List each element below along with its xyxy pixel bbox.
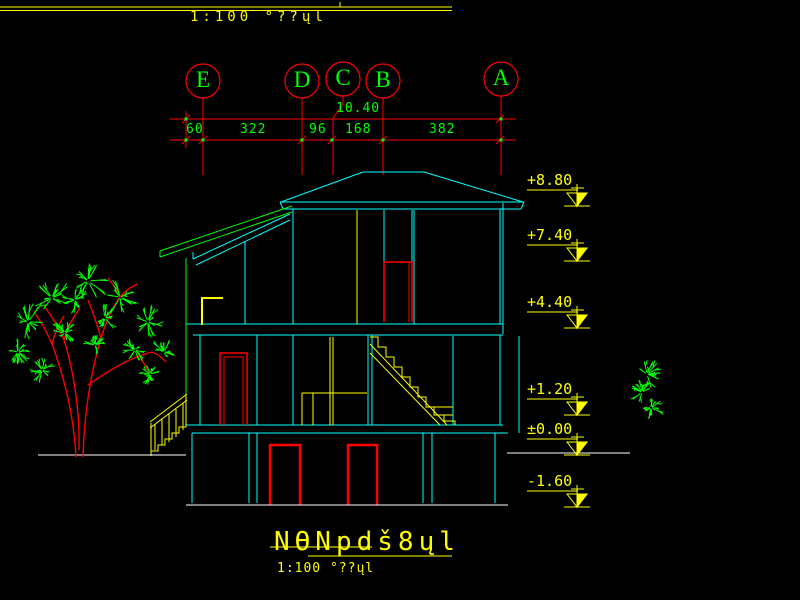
drawing-title: NϴNpdš8ųl (274, 529, 460, 555)
elevation-label-neg160: -1.60 (527, 474, 572, 489)
elevation-label-120: +1.20 (527, 382, 572, 397)
top-scale-text: 1:100 °??ųl (190, 10, 327, 24)
dim-segment-2: 322 (240, 123, 266, 136)
left-tree-foliage (9, 264, 175, 385)
grid-bubble-E: E (185, 68, 221, 91)
grid-bubble-C: C (325, 66, 361, 89)
right-bush-foliage (631, 360, 663, 419)
cad-viewport[interactable]: 1:100 °??ųl E D C B A 10.40 60 322 96 16… (0, 0, 800, 600)
grid-bubble-B: B (365, 68, 401, 91)
dim-overall: 10.40 (336, 102, 380, 115)
interior-partitions (202, 210, 367, 425)
elevation-label-880: +8.80 (527, 173, 572, 188)
interior-stair (370, 337, 455, 425)
main-roof (280, 172, 524, 209)
dim-segment-4: 168 (345, 123, 371, 136)
elevation-label-740: +7.40 (527, 228, 572, 243)
left-tree-branches (34, 278, 166, 457)
lean-to-roof (160, 206, 292, 265)
elevation-label-440: +4.40 (527, 295, 572, 310)
dim-segment-3: 96 (309, 123, 327, 136)
grid-bubble-A: A (483, 66, 519, 89)
drawing-title-scale: 1:100 °??ųl (277, 562, 374, 575)
elevation-label-000: ±0.00 (527, 422, 572, 437)
grid-bubble-D: D (284, 68, 320, 91)
dim-segment-1: 60 (186, 123, 204, 136)
exterior-stair (150, 394, 187, 456)
dim-segment-5: 382 (429, 123, 455, 136)
